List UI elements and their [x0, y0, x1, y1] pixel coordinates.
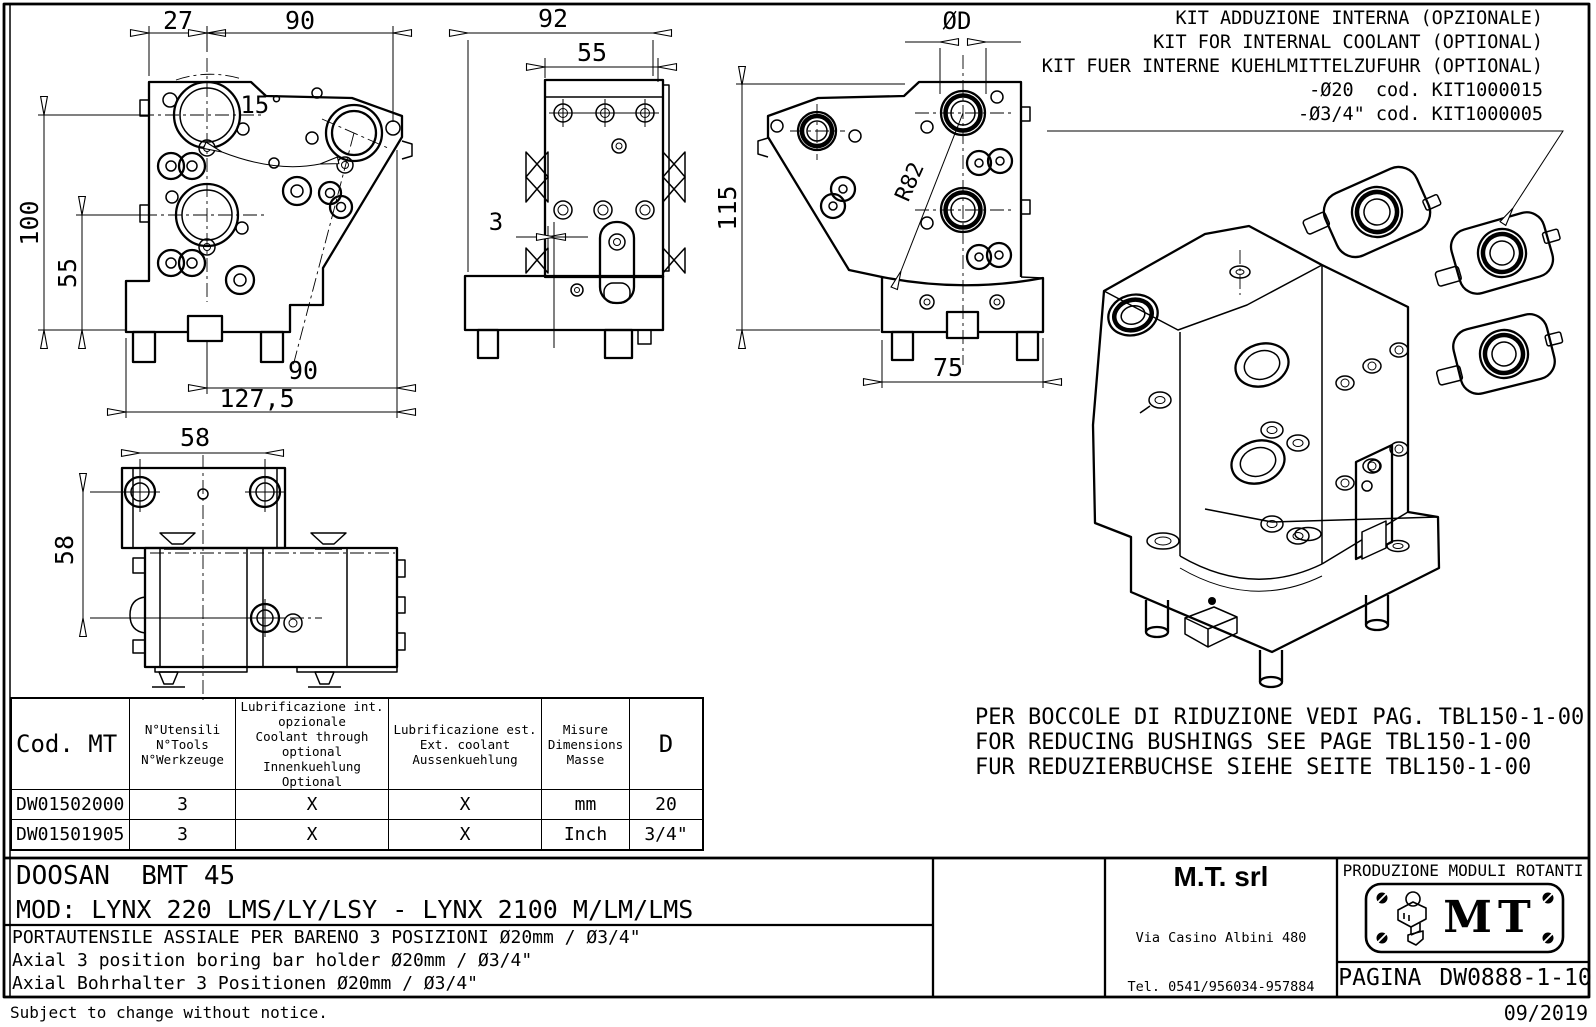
- description-de: Axial Bohrhalter 3 Positionen Ø20mm / Ø3…: [12, 974, 478, 994]
- dim-front-55: 55: [54, 240, 82, 306]
- front-view: [38, 26, 412, 418]
- bushing-note-en: FOR REDUCING BUSHINGS SEE PAGE TBL150-1-…: [975, 731, 1531, 756]
- isometric-view: [1047, 131, 1570, 687]
- bottom-view: [83, 453, 405, 700]
- bottom-clamp-symbols: [152, 533, 346, 687]
- table-cell: 3/4": [630, 820, 702, 849]
- company-info: Via Casino Albini 480 Tel. 0541/956034-9…: [1101, 898, 1341, 1027]
- dim-front-angle-15: 15°: [236, 92, 288, 119]
- table-cell: 3: [130, 820, 236, 849]
- bushing-note-de: FUR REDUZIERBUCHSE SIEHE SEITE TBL150-1-…: [975, 756, 1531, 781]
- dim-back-75: 75: [921, 354, 975, 382]
- dim-front-90-top: 90: [272, 7, 328, 35]
- side-view: [465, 33, 685, 358]
- production-label: PRODUZIONE MODULI ROTANTI: [1340, 862, 1586, 880]
- table-cell: DW01502000: [12, 790, 130, 820]
- table-cell: mm: [542, 790, 630, 820]
- table-header-dimensions: Misure Dimensions Masse: [542, 699, 630, 790]
- mt-logo-text: MT: [1424, 893, 1556, 942]
- dim-bottom-58-h: 58: [168, 424, 222, 452]
- dim-back-115: 115: [714, 174, 742, 242]
- dim-front-127-5: 127,5: [215, 385, 299, 413]
- machine-model: MOD: LYNX 220 LMS/LY/LSY - LYNX 2100 M/L…: [16, 896, 693, 924]
- kit-option-34: -Ø3/4" cod. KIT1000005: [1298, 105, 1543, 126]
- company-address: Via Casino Albini 480: [1101, 930, 1341, 946]
- dim-side-3: 3: [482, 209, 510, 236]
- dim-bottom-58-v: 58: [51, 517, 79, 583]
- description-it: PORTAUTENSILE ASSIALE PER BARENO 3 POSIZ…: [12, 928, 641, 948]
- table-cell: 20: [630, 790, 702, 820]
- dim-side-55: 55: [566, 39, 618, 67]
- dim-front-27: 27: [153, 7, 203, 35]
- table-header-tools: N°Utensili N°Tools N°Werkzeuge: [130, 699, 236, 790]
- side-view-screws: [549, 99, 659, 296]
- company-tel: Tel. 0541/956034-957884: [1101, 979, 1341, 995]
- kit-leader-line: [1047, 131, 1563, 208]
- footer-disclaimer: Subject to change without notice.: [10, 1004, 328, 1022]
- back-view: [736, 42, 1043, 388]
- coolant-flange-1: [1297, 156, 1447, 273]
- feet: [1146, 595, 1388, 687]
- dim-front-100: 100: [16, 190, 44, 256]
- mt-machine-icon: [1398, 892, 1426, 945]
- table-cell: Inch: [542, 820, 630, 849]
- description-en: Axial 3 position boring bar holder Ø20mm…: [12, 951, 532, 971]
- table-header-internal-coolant: Lubrificazione int. opzionale Coolant th…: [236, 699, 389, 790]
- clamp-symbols: [526, 152, 685, 273]
- bushing-note-it: PER BOCCOLE DI RIDUZIONE VEDI PAG. TBL15…: [975, 706, 1584, 731]
- right-face-bosses: [1336, 343, 1408, 490]
- kit-note-en: KIT FOR INTERNAL COOLANT (OPTIONAL): [1153, 33, 1543, 54]
- company-name: M.T. srl: [1105, 861, 1337, 892]
- machine-product: DOOSAN BMT 45: [16, 862, 235, 891]
- kit-note-it: KIT ADDUZIONE INTERNA (OPZIONALE): [1175, 9, 1543, 30]
- coolant-flange-2: [1426, 205, 1569, 304]
- dim-front-90-bottom: 90: [275, 357, 331, 385]
- table-cell: X: [389, 820, 542, 849]
- drawing-sheet: KIT ADDUZIONE INTERNA (OPZIONALE) KIT FO…: [0, 0, 1596, 1027]
- table-cell: X: [389, 790, 542, 820]
- coolant-flange-3: [1428, 307, 1570, 402]
- page-number: DW0888-1-10: [1439, 966, 1591, 992]
- table-cell: 3: [130, 790, 236, 820]
- table-cell: X: [236, 790, 389, 820]
- table-cell: X: [236, 820, 389, 849]
- dim-side-92: 92: [527, 5, 579, 33]
- table-header-d: D: [630, 699, 702, 790]
- footer-date: 09/2019: [1468, 1002, 1588, 1024]
- kit-option-20: -Ø20 cod. KIT1000015: [1309, 81, 1543, 102]
- table-header-cod-mt: Cod. MT: [12, 699, 130, 790]
- table-cell: DW01501905: [12, 820, 130, 849]
- dim-back-diameter-d: ØD: [925, 8, 989, 35]
- parts-table: Cod. MT N°Utensili N°Tools N°Werkzeuge L…: [10, 697, 704, 851]
- page-row: PAGINA DW0888-1-10: [1345, 966, 1585, 992]
- kit-note-de: KIT FUER INTERNE KUEHLMITTELZUFUHR (OPTI…: [1042, 57, 1543, 78]
- page-label: PAGINA: [1338, 966, 1421, 992]
- table-header-external-coolant: Lubrificazione est. Ext. coolant Aussenk…: [389, 699, 542, 790]
